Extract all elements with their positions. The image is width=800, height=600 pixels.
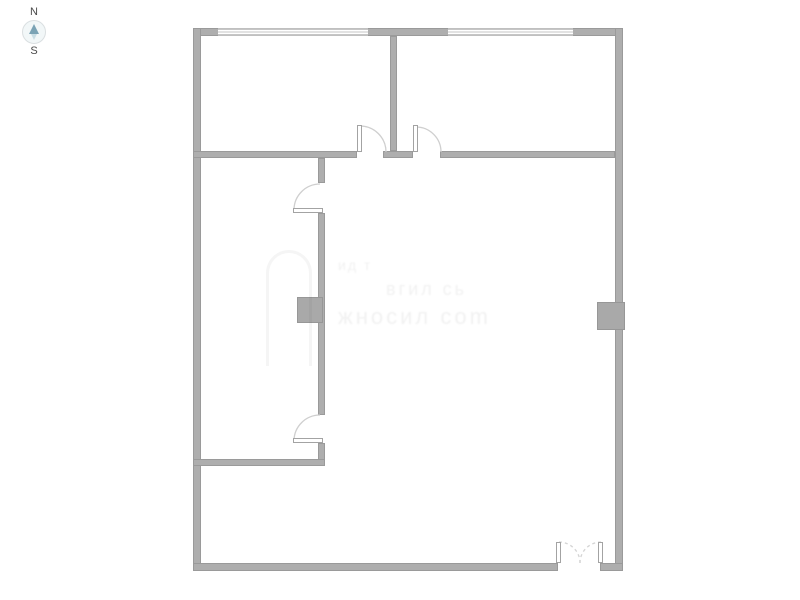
compass-needle-tail-icon	[31, 34, 37, 40]
door-leaf-top-room-right	[413, 125, 418, 152]
door-arc-left-room-upper	[294, 184, 320, 210]
wall-horizontal-center	[383, 151, 413, 158]
watermark-line-2: вгил сь	[338, 276, 553, 302]
floor-plan: N S ид т вгил сь жносил com	[0, 0, 800, 600]
outer-wall-bottom-right	[600, 563, 623, 571]
watermark-line-3: жносил com	[338, 302, 553, 332]
outer-wall-bottom-left	[193, 563, 558, 571]
door-arc-top-room-right	[416, 127, 441, 152]
wall-left-room-right-upper	[318, 158, 325, 183]
door-leaf-top-room-left	[357, 125, 362, 152]
door-arc-top-room-left	[360, 126, 386, 152]
compass-dial	[22, 20, 46, 44]
pillar-right-wall	[597, 302, 625, 330]
window-top-left	[218, 28, 368, 36]
door-leaf-left-room-lower	[293, 438, 323, 443]
entry-door-leaf-left	[556, 542, 561, 563]
compass-north-label: N	[18, 6, 50, 19]
window-top-right	[448, 28, 573, 36]
wall-horizontal-right	[440, 151, 615, 158]
outer-wall-right	[615, 28, 623, 571]
outer-wall-left	[193, 28, 201, 571]
wall-top-rooms-divider	[390, 36, 397, 151]
entry-door-leaf-right	[598, 542, 603, 563]
watermark-logo-arch	[266, 250, 312, 366]
entry-door-arc-left	[559, 542, 580, 563]
wall-horizontal-left	[193, 151, 357, 158]
wall-left-room-bottom	[193, 459, 325, 466]
compass: N S	[18, 6, 50, 58]
watermark: ид т вгил сь жносил com	[338, 254, 553, 332]
compass-south-label: S	[18, 45, 50, 58]
door-leaf-left-room-upper	[293, 208, 323, 213]
watermark-line-1: ид т	[338, 254, 553, 276]
compass-needle-icon	[29, 24, 39, 34]
